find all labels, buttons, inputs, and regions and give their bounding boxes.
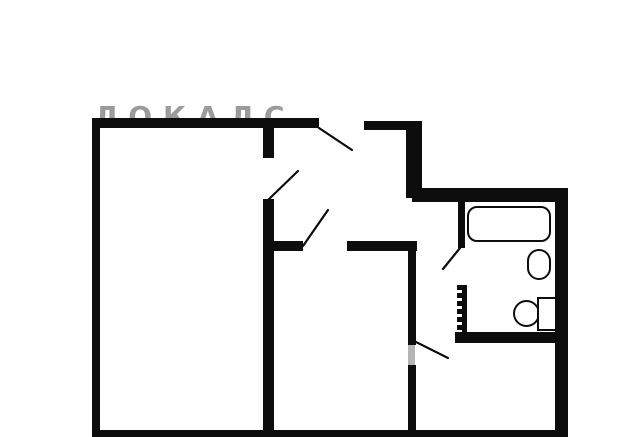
floor-plan: ЛОКАЛС: [0, 0, 640, 437]
door-leaf-hall: [412, 340, 448, 358]
door-leaf-room1: [268, 171, 298, 200]
door-leaf-entry: [319, 128, 352, 150]
door-leaf-bathroom: [443, 248, 460, 269]
door-leaf-room2: [303, 210, 328, 246]
door-swing-lines: [0, 0, 640, 437]
